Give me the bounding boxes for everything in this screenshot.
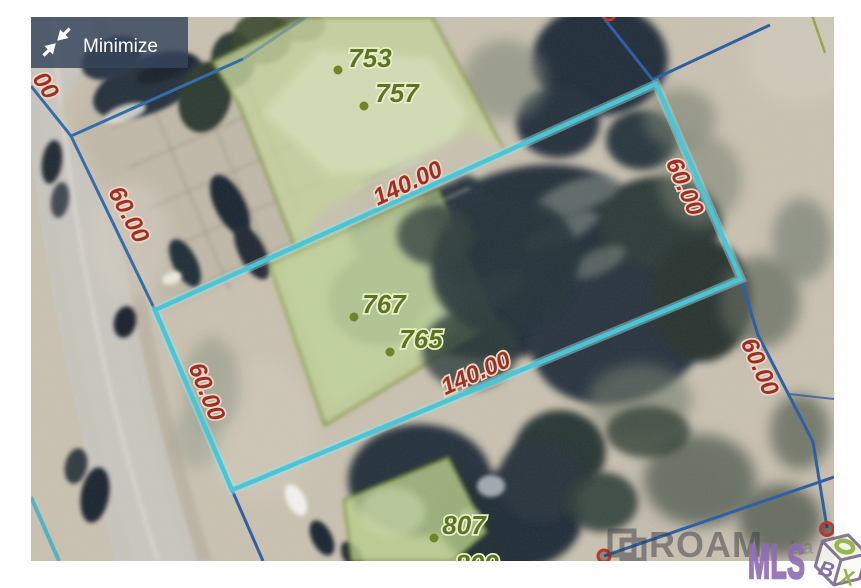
- svg-text:Minimize: Minimize: [83, 36, 158, 57]
- svg-text:ROAM: ROAM: [649, 524, 763, 565]
- svg-text:MLS: MLS: [748, 536, 805, 588]
